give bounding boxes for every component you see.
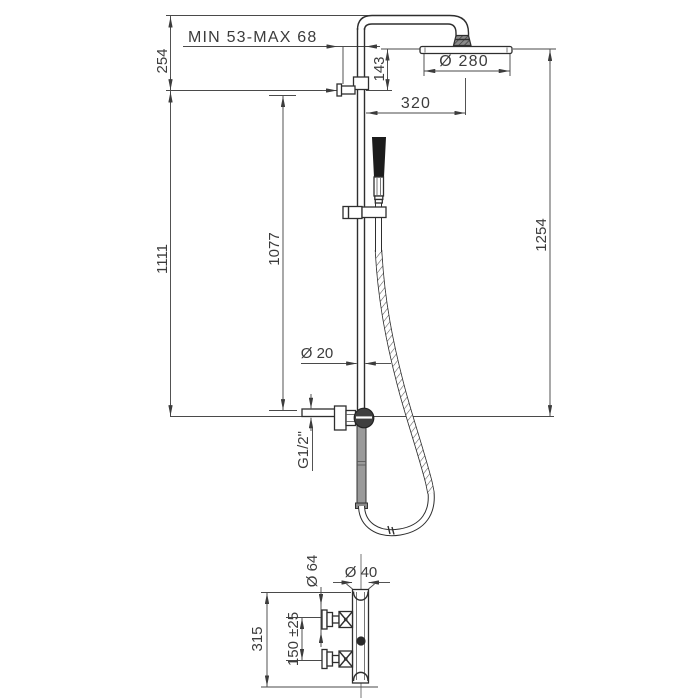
column-outlet-pipe	[356, 424, 368, 509]
dimension-labels: MIN 53-MAX 68 254 143 Ø 280 320 1111 107…	[154, 29, 550, 666]
dim-label-top-offset: 254	[154, 48, 171, 73]
dim-label-bracket-to-supply: 1111	[154, 244, 171, 274]
overhead-shower	[420, 36, 512, 54]
supply-flange	[335, 406, 347, 430]
mixer-body	[353, 590, 369, 684]
shower-column-dimension-drawing: MIN 53-MAX 68 254 143 Ø 280 320 1111 107…	[0, 0, 700, 700]
dim-label-connection-thread: G1/2"	[295, 431, 312, 469]
dim-label-slide-height: 1077	[266, 232, 283, 265]
dim-label-inlet-spacing: 150 ±25	[285, 612, 302, 666]
dim-label-head-diameter: Ø 280	[439, 53, 489, 70]
hand-shower-body	[374, 177, 384, 196]
wall-bracket	[337, 77, 369, 96]
hand-shower-handle	[373, 138, 386, 178]
dim-label-adjust-range: MIN 53-MAX 68	[188, 29, 317, 46]
wall-supply-connection	[302, 406, 374, 430]
dim-label-head-to-supply: 1254	[533, 218, 550, 251]
dim-label-head-to-bracket: 143	[371, 56, 388, 81]
dim-label-body-diameter: Ø 40	[345, 564, 378, 581]
dim-label-arm-reach: 320	[401, 95, 431, 112]
head-cone-connector	[454, 36, 472, 46]
dim-label-riser-diameter: Ø 20	[301, 345, 334, 362]
dim-label-mixer-height: 315	[249, 626, 266, 651]
technical-drawing-page: MIN 53-MAX 68 254 143 Ø 280 320 1111 107…	[0, 0, 700, 700]
dim-label-handle-diameter: Ø 64	[304, 555, 321, 588]
slider-holder	[343, 207, 362, 219]
supply-pipe	[302, 409, 336, 417]
shower-hose	[362, 203, 432, 535]
mixer-bottom-inlet	[322, 650, 353, 669]
mixer-top-inlet	[322, 610, 353, 629]
riser-collar	[354, 77, 369, 90]
mixer-knob	[356, 636, 365, 645]
